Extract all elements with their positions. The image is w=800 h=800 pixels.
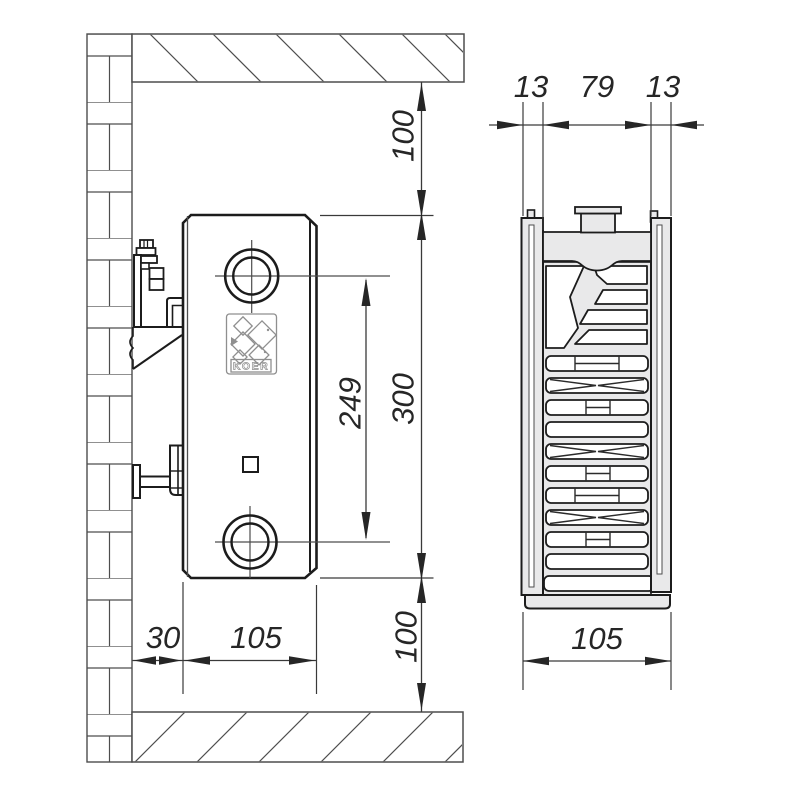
radiator-cross-section (522, 207, 672, 609)
brick-wall (87, 34, 132, 762)
connection-stub-flange (575, 207, 621, 214)
floor-slab (132, 712, 495, 762)
left-panel-channel (529, 225, 534, 587)
dim-side-depth: 105 (230, 620, 282, 655)
ceiling-slab (132, 34, 493, 82)
dim-top-clearance: 100 (386, 110, 421, 162)
lower-bracket (133, 446, 183, 499)
dim-total-depth: 105 (571, 621, 623, 656)
dim-bottom-clearance: 100 (389, 611, 424, 663)
dim-radiator-height: 300 (386, 373, 421, 425)
drawing-canvas: KOER (0, 0, 800, 800)
section-base (525, 595, 670, 609)
dim-wall-gap: 30 (146, 620, 180, 655)
right-panel-channel (657, 225, 662, 574)
connection-stub (581, 214, 615, 233)
upper-bracket (130, 240, 183, 369)
bracket-gusset (133, 335, 182, 369)
section-header (543, 207, 651, 271)
dim-front-panel: 13 (514, 69, 548, 104)
dim-connection-spacing: 249 (333, 377, 368, 430)
dim-rear-panel: 13 (646, 69, 680, 104)
vent-plug-square (243, 457, 258, 472)
dim-core: 79 (580, 69, 614, 104)
radiator-installation-drawing: KOER (0, 0, 800, 800)
bracket-hook (167, 298, 183, 327)
logo-text: KOER (233, 361, 269, 373)
